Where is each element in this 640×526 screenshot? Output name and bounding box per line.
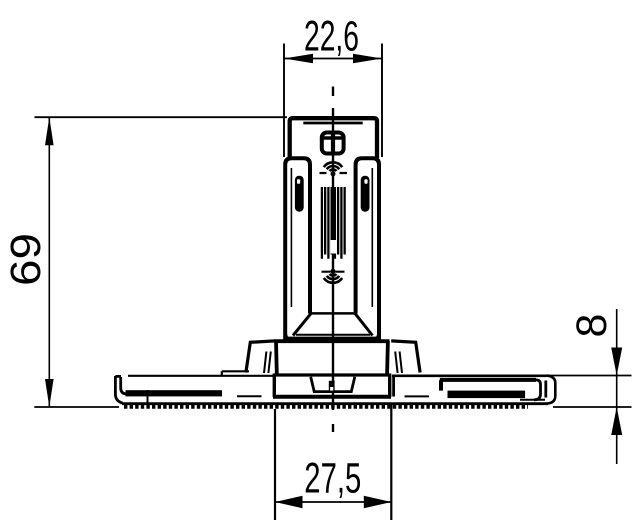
svg-text:69: 69 (2, 233, 50, 286)
svg-text:22,6: 22,6 (304, 13, 359, 61)
svg-text:8: 8 (568, 314, 616, 338)
svg-text:27,5: 27,5 (304, 455, 361, 503)
